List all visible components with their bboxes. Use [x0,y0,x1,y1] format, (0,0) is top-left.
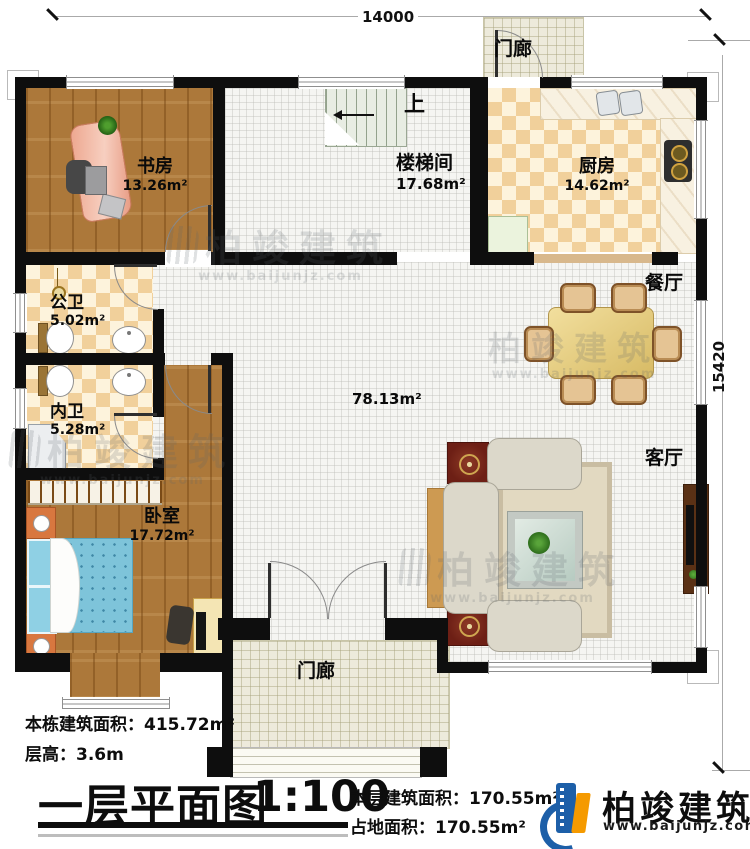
brand-website: www.baijunjz.com [603,819,750,834]
stairwell-area: 17.68m² [396,175,466,193]
hall-area-label: 78.13m² [352,390,422,408]
toilet [46,365,74,397]
kitchen-threshold [534,254,652,263]
bedroom-tv [196,612,206,650]
study-door-leaf [208,205,211,251]
private-bath-area: 5.28m² [50,422,105,439]
kitchen-area: 14.62m² [542,178,652,195]
public-bath-area: 5.02m² [50,313,105,330]
stairs-arrow-head [333,110,342,120]
wall-kitchen-bottom [470,252,534,265]
dining-chair [560,283,596,313]
living-tv [686,505,694,565]
wall-bedroom-entry [211,353,233,365]
building-area-text: 本栋建筑面积：415.72m² [25,710,235,735]
bay-window [62,697,170,709]
right-dimension-line [722,55,723,770]
floor-plan-canvas: 14000 15420 [0,0,750,849]
window [13,388,27,429]
sofa-bottom [487,600,582,652]
wall-bedroom-right [222,365,233,747]
title-underline-thick [38,822,348,828]
wall-kitchen-left [470,87,488,255]
bedroom-bay-floor [70,653,160,699]
wall-kitchen-bottom-stub [652,252,678,265]
public-bath-name: 公卫 [50,293,105,313]
dim-tick [46,8,59,21]
dining-chair [611,375,647,405]
nightstand [26,507,56,539]
door-opening [165,250,211,267]
wall-bath-bottom [15,468,164,480]
kitchen-label: 厨房 14.62m² [542,156,652,194]
brand-logo-icon [540,781,598,845]
stairwell-label: 楼梯间 17.68m² [396,152,466,193]
wall-bedroom-bottom [15,653,70,672]
living-label: 客厅 [645,447,683,470]
door-opening [488,77,540,88]
private-bath-door-leaf [114,413,157,416]
rug-medallion [447,442,489,484]
window [488,660,652,674]
entry-door-left-leaf [268,563,271,618]
stairwell-name: 楼梯间 [396,152,466,175]
dining-chair [652,326,682,362]
wall-entry-left [218,618,270,640]
study-area: 13.26m² [95,178,215,195]
bedroom-label: 卧室 17.72m² [112,506,212,544]
stairs-up-label: 上 [404,92,425,117]
study-name: 书房 [95,156,215,178]
pendant-lamp-cord [57,268,58,288]
wall-bath-right [153,309,164,353]
porch-top-label: 门廊 [494,38,532,61]
footprint-area-text: 占地面积：170.55m² [350,813,526,838]
wall-bath-right [153,365,164,417]
window [694,120,708,219]
dining-chair [524,326,554,362]
bedroom-name: 卧室 [112,506,212,528]
window [694,300,708,405]
kitchen-name: 厨房 [542,156,652,178]
window [571,75,663,89]
window [66,75,174,89]
entry-door-right-leaf [384,563,387,618]
desk-plant [98,116,117,135]
dimension-width-label: 14000 [358,8,418,26]
bathroom-sink [112,326,146,354]
window [694,586,708,648]
sofa-left [443,482,499,614]
bedroom-area: 17.72m² [112,528,212,545]
logo-windows [560,788,564,828]
dining-table [548,307,654,379]
dining-label: 餐厅 [645,272,683,295]
stairs-direction-arrow [340,114,374,116]
study-label: 书房 13.26m² [95,156,215,194]
kitchen-sink-basin [618,90,643,117]
porch-bottom-label: 门廊 [297,660,335,683]
stove-burner [671,163,688,180]
public-bath-label: 公卫 5.02m² [50,293,105,330]
floor-area-text: 本层建筑面积：170.55m² [350,784,560,809]
coffee-table-plant [528,532,550,554]
wall-bedroom-bottom [160,653,233,672]
kitchen-sink-basin [595,90,620,117]
floor-height-text: 层高：3.6m [25,740,124,765]
private-bath-label: 内卫 5.28m² [50,402,105,439]
dim-extension-line [712,770,750,771]
kitchen-counter-right [660,118,698,254]
dining-chair [560,375,596,405]
wall-bath-divider [15,353,165,365]
porch-column [420,747,447,777]
fridge [488,216,528,254]
dimension-height-label: 15420 [710,334,728,400]
private-bath-name: 内卫 [50,402,105,422]
stove-burner [671,145,688,162]
wall-left [15,77,26,672]
wardrobe-hangers [28,481,162,505]
porch-bottom-floor [222,640,450,749]
window [298,75,405,89]
window [13,293,27,333]
title-underline-thin [38,834,348,837]
bathroom-sink [112,368,146,396]
dining-chair [611,283,647,313]
sofa-top [487,438,582,490]
public-bath-door-leaf [114,264,157,267]
dim-tick [699,8,712,21]
bedroom-door-leaf [208,365,211,413]
